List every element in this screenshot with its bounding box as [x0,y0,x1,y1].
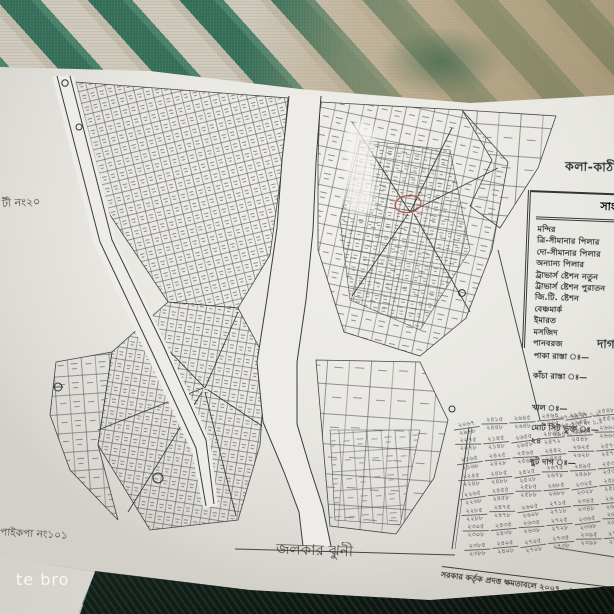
dag-entry: ২৬০৫২৬০৮ [516,501,544,519]
dag-entry: ২৪৯৫২৪৯৮ [569,462,596,478]
dag-entry: ২৭২৫২৭২৮ [546,516,573,533]
dag-entry: ২৩৯৫২৩৯৮ [576,531,602,546]
dag-entry: ২৩২৫২৩২৮ [571,479,599,497]
dag-entry: ২৫৪৮২৫৫২ [593,406,614,423]
parcel-cluster-lower-right [316,360,448,534]
dag-entry: ২২৮৫২২৮৮ [461,506,488,522]
dag-entry: ২৪২৫২৪২৮ [484,451,511,468]
dag-entry: ২৫৭৫২৫৭৮ [596,441,614,458]
dag-entry: ২৫৮৫২৫৮৮ [515,483,541,498]
dag-entry: ২১৬৫২১৬৮ [456,454,484,472]
dag-entry: ২৭৪৫২৭৪৮ [603,528,614,545]
dag-entry: ২৪৩৫২৪৩৮ [490,521,517,538]
dag-entry: ২৯৪২২৯৪৫ [564,409,592,427]
dag-entry: ২০৬৭২৯৬৮ [453,419,481,437]
dag-entry: ২৫৩৫২৫৩৮ [597,459,614,476]
dag-entry: ২৭০৫২৭০৮ [519,536,547,554]
dag-entry: ২৪১৫২৪৪৮ [481,416,507,431]
dag-entry: ২৫৯৫২৫৯৮ [599,476,614,493]
left-margin-note: টী নং২০ [2,193,41,214]
legend-header: সাং [536,195,614,224]
video-overlay-watermark: te bro [16,570,69,589]
dag-entry: ২৬৫৫২৬৫৮ [510,432,538,450]
bottom-left-note: পাইকপা নং১০১ [0,525,68,546]
dag-entry: ২৬৪৫২৬৪৮ [509,414,536,430]
dag-entry: ২৩০৫২৩০৮ [463,523,489,538]
stat-line: পাকা রাস্তা ঃ— [534,350,614,366]
dag-entry: ২৬৩৫২৬৩৮ [518,519,545,535]
dag-entry: ২৭১৫২৭১৮ [544,498,571,515]
dag-entry: ২৬৬২২৬৬৫ [595,424,614,439]
paper-glare [346,122,374,214]
survey-station-icon [449,406,455,412]
dag-entry: ২৩৮৫২৩৮৮ [464,541,491,557]
bottom-center-mouza-name: জলকার ঝুনী [276,538,354,566]
dag-entry: ২৪৬৮২৪৭২ [538,429,565,446]
stat-line: কাঁচা রাস্তা ঃ— [533,370,613,386]
dag-number-table: ২০৬৭২৯৬৮ ২৪১৫২৪৪৮ ২৬৪৫২৬৪৮ ২৪৬৪২৪৬৫ ২৯৪২… [452,405,614,560]
dag-entry: ২২৪৫২২৪৮ [458,471,485,487]
dag-entry: ২৪৭৫২৪৭৮ [489,503,515,518]
dag-entry: ২৬১৫২৬১৮ [600,494,614,511]
dag-entry: ২০৭৫২০৭৮ [455,436,481,451]
dag-entry: ২৬৯৫২৬৯৮ [602,511,614,526]
dag-entry: ২৪৮৫২৪৮৮ [486,469,513,486]
dag-entry: ২৪৪২২৪৪৫ [540,446,567,463]
dag-entry: ২৪০৫২৪০৮ [492,538,519,555]
dag-entry: ২৫৪৫২৫৪৮ [566,427,593,443]
legend-box: সাং মন্দিরত্রি-সীমানার পিলারদো-সীমানার প… [522,190,614,353]
dag-entry: ২৫৬৫২৫৬৮ [512,449,539,465]
dag-entry: ২৬৭৫২৬৭৮ [542,464,568,479]
dag-entry: ২৩৪৫২৩৪৮ [573,496,600,512]
dag-entry: ২৪৬৪২৪৬৫ [537,411,564,428]
dag-entry: ২৬২৫২৬২৮ [568,444,594,459]
parcel-cluster-upper-left [75,82,288,308]
dag-entry: ২৬৮৫২৬৮৮ [543,481,570,498]
legend-items: মন্দিরত্রি-সীমানার পিলারদো-সীমানার পিলার… [525,223,614,353]
photo-of-cadastral-map: কলা-কাঠী টী নং২০ পাইকপা নং১০১ জলকার ঝুনী… [0,0,614,614]
dag-entry: ২২৬৫২২৬৮ [459,489,487,507]
dag-entry: ২৪৫৫২৪৫৮ [487,486,514,503]
mouza-title: কলা-কাঠী [565,158,614,179]
dag-entry: ২১৪৫২১৪৮ [483,434,510,451]
dag-entry: ২৩৬৫২৩৬৮ [574,514,602,532]
